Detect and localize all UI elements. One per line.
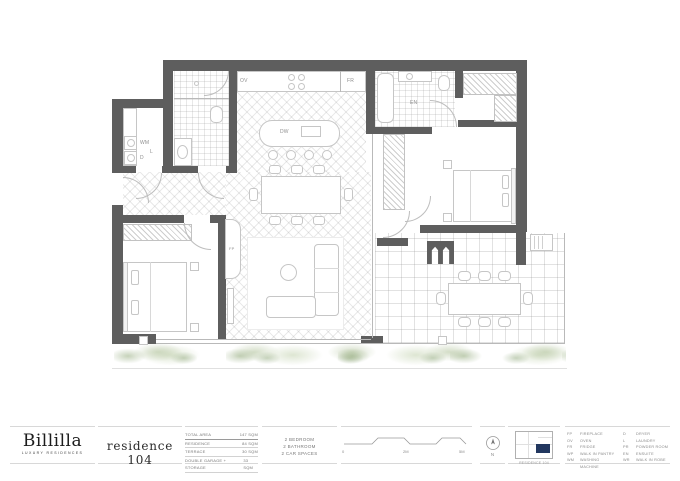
wall-segment — [167, 60, 527, 71]
bbq-grill-line — [542, 236, 543, 249]
scale-bar — [342, 431, 470, 449]
footer-logo-cell: Billilla LUXURY RESIDENCES — [10, 426, 95, 464]
planter-box — [438, 336, 447, 345]
keyplan-caption: RESIDENCE 104 — [508, 461, 560, 465]
area-label: TERRACE — [185, 448, 206, 456]
feature-item: 2 CAR SPACES — [262, 450, 337, 457]
footer-north-cell: N — [480, 426, 505, 464]
cooktop-burner — [288, 74, 295, 81]
legend-item: WPWALK IN PANTRY — [567, 451, 619, 458]
keyplan-line — [538, 437, 552, 438]
wall-segment — [112, 205, 123, 344]
scale-label-5m: 5M — [459, 449, 465, 454]
keyplan-line — [528, 432, 529, 458]
legend-abbr: WR — [623, 457, 636, 464]
wall-segment — [163, 60, 173, 172]
walk-in-robe-shelving — [463, 73, 517, 95]
legend-abbr: L — [623, 438, 636, 445]
wall-segment — [226, 166, 237, 173]
dining-chair — [269, 165, 281, 174]
legend-item: ENENSUITE — [623, 451, 669, 458]
feature-item: 2 BEDROOM — [262, 436, 337, 443]
laundry-label: L — [150, 150, 153, 155]
outdoor-chair — [498, 317, 511, 327]
basin — [177, 145, 188, 159]
scale-label-2m: 2M — [403, 449, 409, 454]
outdoor-chair — [498, 271, 511, 281]
shower-screen-line — [174, 98, 229, 99]
dining-chair — [313, 216, 325, 225]
legend-abbr: WM — [567, 457, 580, 470]
legend-item: OVOVEN — [567, 438, 619, 445]
legend-item: FPFIREPLACE — [567, 431, 619, 438]
wall-segment — [377, 238, 408, 246]
ensuite-label: EN — [410, 101, 417, 106]
cooktop-burner — [298, 83, 305, 90]
outdoor-chair — [478, 317, 491, 327]
legend-item: DDRYER — [623, 431, 669, 438]
footer-features-cell: 2 BEDROOM 2 BATHROOM 2 CAR SPACES — [262, 426, 337, 464]
sofa-cushion-line — [314, 268, 339, 269]
area-value: 33 SQM — [243, 457, 258, 472]
wall-segment — [112, 215, 184, 223]
dishwasher-label: DW — [280, 130, 289, 135]
cooktop-burner — [288, 83, 295, 90]
island-sink — [301, 126, 321, 137]
footer-area-table: TOTAL AREA 147 SQM RESIDENCE 84 SQM TERR… — [185, 426, 258, 464]
table-row: RESIDENCE 84 SQM — [185, 440, 258, 449]
wall-segment — [516, 60, 527, 232]
legend-term: FIREPLACE — [580, 431, 603, 438]
area-label: RESIDENCE — [185, 440, 210, 448]
brand-tagline: LUXURY RESIDENCES — [10, 451, 95, 455]
north-arrow-icon — [485, 435, 501, 451]
footer-title-cell: residence 104 — [98, 426, 182, 464]
dining-chair — [291, 165, 303, 174]
legend-term: WALK IN PANTRY — [580, 451, 614, 458]
tv-unit — [227, 288, 234, 324]
legend-term: WASHING MACHINE — [580, 457, 619, 470]
sofa-chaise — [266, 296, 316, 318]
footer-keyplan-cell: RESIDENCE 104 — [508, 426, 560, 464]
pillow — [502, 175, 509, 189]
fridge-label: FR — [347, 79, 354, 84]
blanket-line — [150, 262, 151, 332]
dining-chair — [269, 216, 281, 225]
stool — [268, 150, 278, 160]
scale-label-0: 0 — [342, 449, 344, 454]
outdoor-chair — [458, 317, 471, 327]
legend-term: ENSUITE — [636, 451, 654, 458]
washing-machine-label: WM — [140, 141, 149, 146]
sofa-cushion-line — [314, 292, 339, 293]
legend-item: LLAUNDRY — [623, 438, 669, 445]
terrace-edge-line — [564, 233, 565, 344]
footer-scale-cell: 0 2M 5M — [341, 426, 472, 464]
master-headboard — [511, 168, 516, 224]
legend-abbr: D — [623, 431, 636, 438]
outdoor-chair — [523, 292, 533, 305]
kitchen-island — [259, 120, 340, 147]
bedside-table — [443, 213, 452, 222]
residence-title: residence 104 — [98, 439, 182, 467]
toilet — [438, 75, 450, 91]
pillow — [131, 270, 139, 285]
floor-plan: OV FR DW EN L WM D FP — [0, 0, 680, 420]
brochure-page: OV FR DW EN L WM D FP Billilla LUXURY RE… — [0, 0, 680, 481]
outdoor-chair — [436, 292, 446, 305]
legend-term: OVEN — [580, 438, 592, 445]
legend-term: WALK IN ROBE — [636, 457, 666, 464]
bedside-table — [443, 160, 452, 169]
legend-abbr: FP — [567, 431, 580, 438]
bbq-grill-line — [538, 236, 539, 249]
planter-box — [139, 336, 148, 345]
coffee-table — [280, 264, 297, 281]
legend-column-1: FPFIREPLACE OVOVEN FRFRIDGE WPWALK IN PA… — [567, 431, 619, 471]
key-plan — [515, 431, 553, 459]
legend-abbr: WP — [567, 451, 580, 458]
area-label: DOUBLE GARAGE + STORAGE — [185, 457, 243, 472]
wall-segment — [366, 70, 375, 134]
dining-chair — [344, 188, 353, 201]
wall-segment — [455, 70, 463, 98]
outdoor-chair — [458, 271, 471, 281]
wall-segment — [366, 127, 432, 134]
window-line — [156, 339, 371, 340]
wall-segment — [229, 70, 237, 172]
legend-abbr: OV — [567, 438, 580, 445]
walk-in-robe-shelving — [494, 95, 517, 122]
legend-abbr: FR — [567, 444, 580, 451]
garden-strip — [114, 341, 566, 369]
footer-legend-cell: FPFIREPLACE OVOVEN FRFRIDGE WPWALK IN PA… — [565, 426, 670, 464]
legend-term: POWDER ROOM — [636, 444, 668, 451]
dining-table — [261, 176, 341, 214]
north-label: N — [480, 452, 505, 457]
stool — [304, 150, 314, 160]
legend-term: FRIDGE — [580, 444, 596, 451]
window-line — [372, 134, 373, 338]
dining-chair — [249, 188, 258, 201]
bathtub — [377, 73, 394, 123]
table-row: TERRACE 30 SQM — [185, 448, 258, 457]
headboard — [123, 262, 128, 332]
fireplace-label: FP — [229, 246, 235, 251]
dryer-label: D — [140, 156, 144, 161]
area-value: 147 SQM — [240, 431, 258, 439]
wall-segment — [420, 225, 516, 233]
toilet — [210, 106, 223, 123]
sofa — [314, 244, 339, 316]
dryer-door — [127, 154, 135, 162]
legend-term: LAUNDRY — [636, 438, 655, 445]
ensuite-vanity — [398, 71, 432, 82]
dining-chair — [291, 216, 303, 225]
area-value: 84 SQM — [242, 440, 258, 448]
feature-item: 2 BATHROOM — [262, 443, 337, 450]
pillow — [502, 193, 509, 207]
blanket-line — [470, 170, 471, 222]
outdoor-table — [448, 283, 521, 315]
legend-item: WRWALK IN ROBE — [623, 457, 669, 464]
basin — [406, 73, 413, 80]
robe-shelving — [383, 134, 405, 210]
table-row: TOTAL AREA 147 SQM — [185, 431, 258, 440]
legend-abbr: EN — [623, 451, 636, 458]
shower-drain — [194, 81, 199, 86]
wall-segment — [516, 225, 526, 265]
bedside-table — [190, 323, 199, 332]
table-row: DOUBLE GARAGE + STORAGE 33 SQM — [185, 457, 258, 473]
cooktop-burner — [298, 74, 305, 81]
bedside-table — [190, 262, 199, 271]
bedroom2-wardrobe — [123, 224, 192, 241]
wall-segment — [112, 99, 123, 172]
legend-abbr: PR — [623, 444, 636, 451]
wall-segment — [112, 166, 136, 173]
oven-label: OV — [240, 79, 248, 84]
brand-logo: Billilla — [10, 432, 95, 450]
legend-item: WMWASHING MACHINE — [567, 457, 619, 470]
bbq-grill-line — [534, 236, 535, 249]
legend-item: PRPOWDER ROOM — [623, 444, 669, 451]
keyplan-highlight-unit — [536, 444, 550, 453]
area-value: 30 SQM — [242, 448, 258, 456]
wall-segment — [162, 166, 198, 173]
legend-term: DRYER — [636, 431, 650, 438]
stool — [286, 150, 296, 160]
outdoor-chair — [478, 271, 491, 281]
area-label: TOTAL AREA — [185, 431, 211, 439]
bedroom2-door-arc — [184, 223, 211, 250]
legend-item: FRFRIDGE — [567, 444, 619, 451]
stool — [322, 150, 332, 160]
dining-chair — [313, 165, 325, 174]
legend-column-2: DDRYER LLAUNDRY PRPOWDER ROOM ENENSUITE … — [623, 431, 669, 464]
washing-machine-door — [127, 139, 135, 147]
fridge-divider-line — [340, 71, 341, 92]
outdoor-fireplace — [427, 241, 454, 264]
pillow — [131, 300, 139, 315]
